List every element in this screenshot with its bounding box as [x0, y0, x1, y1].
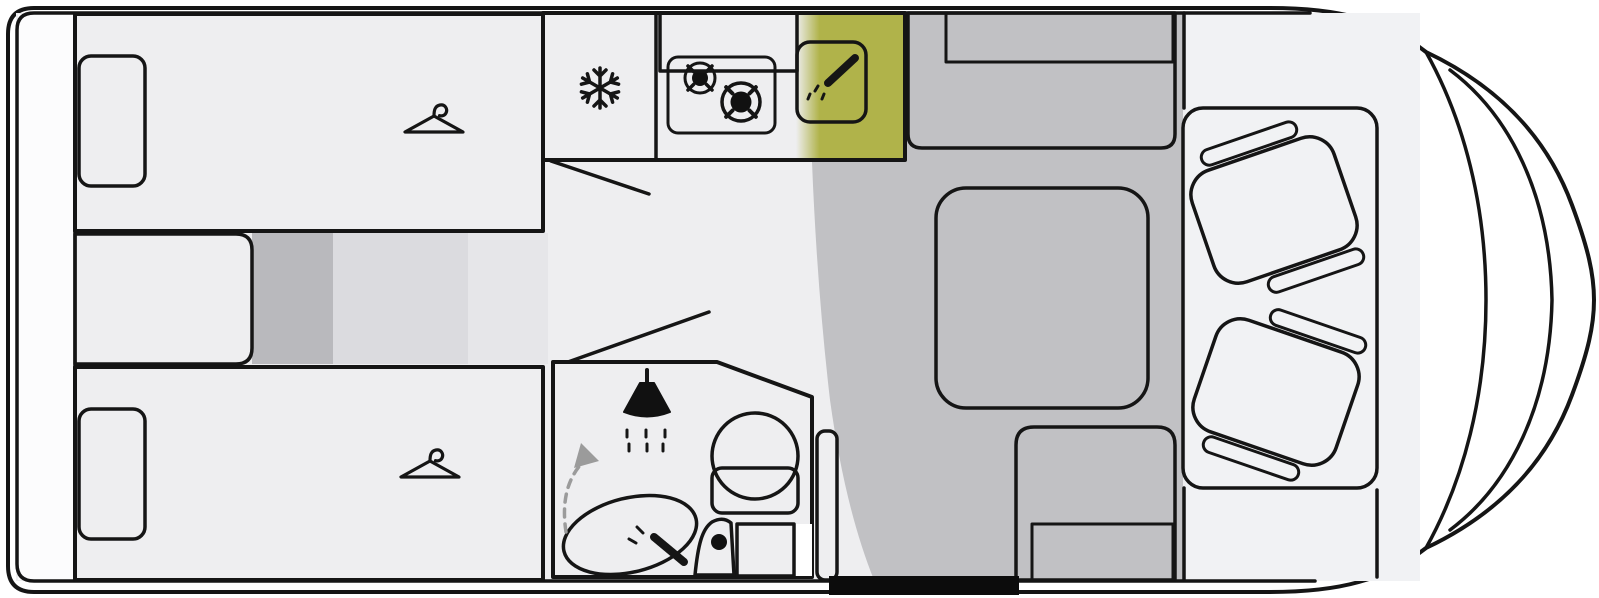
- cab-floor: [1186, 13, 1420, 581]
- flush-button: [711, 534, 727, 550]
- rear-storage-floor: [18, 14, 75, 580]
- step-band-light: [468, 233, 548, 364]
- kitchen-shadow: [796, 15, 903, 158]
- entry-door: [829, 576, 1019, 595]
- motorhome-floorplan: [0, 0, 1599, 598]
- floorplan-canvas: [0, 0, 1599, 598]
- step-band-dark: [252, 233, 333, 364]
- step-band-mid: [333, 233, 468, 364]
- shower-tray-gap: [794, 524, 812, 576]
- windshield-curve-inner: [1426, 52, 1486, 548]
